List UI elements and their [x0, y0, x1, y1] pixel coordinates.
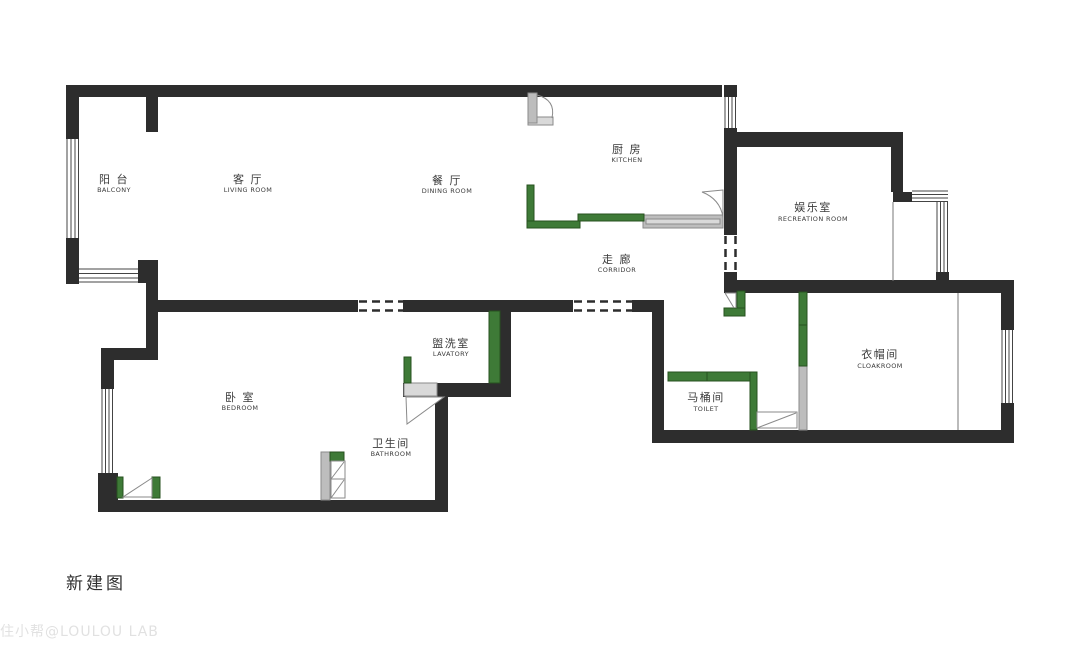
new-wall-entry-cloak-a [799, 292, 807, 325]
balcony-left-window [66, 139, 79, 238]
room-label-bedroom: 卧 室 BEDROOM [222, 390, 259, 412]
wall-balcony-left-upper [66, 85, 79, 139]
room-label-kitchen: 厨 房 KITCHEN [612, 143, 643, 164]
wall-recreation-left-lower [724, 272, 737, 293]
new-wall-bedroom-jamb-right [152, 477, 160, 498]
wall-balcony-left-lower [66, 238, 79, 284]
wall-bathroom-right [435, 388, 448, 512]
wall-bottom-left-block [98, 500, 448, 512]
room-label-toilet: 马桶间 TOILET [687, 390, 725, 413]
wall-recreation-top [724, 132, 903, 147]
bathroom-door-jamb [321, 452, 330, 500]
new-wall-toilet-top-b [707, 372, 753, 381]
wall-corridor-b [403, 300, 573, 312]
wall-bay-corner [893, 192, 912, 202]
wall-balcony-bottom-block [138, 260, 158, 283]
recreation-bay-window-top [912, 190, 948, 202]
room-label-zh: 衣帽间 [861, 347, 899, 361]
room-label-en: CLOAKROOM [857, 362, 903, 370]
kitchen-sliding-door [643, 215, 723, 228]
room-label-en: BEDROOM [222, 404, 259, 412]
room-label-en: CORRIDOR [598, 266, 637, 274]
room-label-en: BATHROOM [371, 450, 412, 458]
opening-bedroom-passage [358, 299, 403, 313]
wall-top [68, 85, 722, 97]
entry-hall-door-swing [725, 293, 736, 308]
kitchen-right-window [724, 97, 737, 128]
room-label-zh: 马桶间 [687, 390, 725, 404]
bedroom-left-window [101, 389, 114, 473]
wall-bedroom-left-upper [101, 348, 114, 389]
room-label-corridor: 走 廊 CORRIDOR [598, 252, 637, 274]
lavatory-door-sill [404, 383, 437, 396]
new-wall-toilet-right [750, 372, 757, 430]
wall-bay-post [936, 272, 949, 287]
floor-plan-page: 阳 台 BALCONY 客 厅 LIVING ROOM 餐 厅 DINING R… [0, 0, 1080, 658]
kitchen-door-swing [702, 190, 723, 217]
new-wall-bathroom-stub [330, 452, 344, 461]
new-wall-toilet-top-a [668, 372, 707, 381]
new-wall-kitchen-high [578, 214, 644, 221]
wall-cloakroom-right-lower [1001, 403, 1014, 443]
room-label-zh: 卧 室 [225, 390, 255, 404]
room-label-recreation-room: 娱乐室 RECREATION ROOM [778, 200, 848, 223]
new-wall-bedroom-jamb-left [117, 477, 123, 498]
watermark: 住小帮@LOULOU LAB [0, 621, 159, 641]
room-label-en: KITCHEN [612, 156, 643, 164]
room-label-zh: 阳 台 [99, 172, 129, 186]
entry-door [528, 93, 553, 125]
opening-corridor-entry [573, 299, 632, 313]
room-label-zh: 客 厅 [233, 172, 263, 186]
room-label-zh: 走 廊 [602, 252, 632, 266]
room-label-en: RECREATION ROOM [778, 215, 848, 223]
room-label-zh: 盥洗室 [432, 336, 470, 350]
room-label-en: DINING ROOM [422, 187, 472, 195]
room-label-balcony: 阳 台 BALCONY [97, 172, 131, 194]
wall-recreation-right [891, 147, 903, 192]
drawing-title: 新建图 [66, 569, 126, 594]
floor-plan-canvas: 阳 台 BALCONY 客 厅 LIVING ROOM 餐 厅 DINING R… [0, 0, 1080, 658]
room-label-zh: 娱乐室 [794, 200, 832, 214]
room-label-dining-room: 餐 厅 DINING ROOM [422, 173, 472, 195]
wall-bottom-right-block [652, 430, 1014, 443]
bathroom-folding-door [331, 461, 345, 498]
room-label-zh: 餐 厅 [432, 173, 462, 187]
toilet-door-swing [757, 412, 797, 428]
opening-recreation-left [723, 235, 738, 272]
wall-balcony-divider-stub [146, 85, 158, 132]
room-label-en: TOILET [692, 405, 718, 413]
bedroom-door-swing [123, 478, 152, 497]
room-label-lavatory: 盥洗室 LAVATORY [432, 336, 470, 358]
room-label-en: BALCONY [97, 186, 131, 194]
new-wall-lavatory-right [489, 311, 500, 383]
room-label-cloakroom: 衣帽间 CLOAKROOM [857, 347, 903, 370]
new-wall-entry-jamb-horizontal [724, 308, 745, 316]
cloakroom-right-window [1001, 330, 1014, 403]
room-label-zh: 厨 房 [612, 143, 642, 156]
wall-recreation-bottom [724, 280, 1014, 293]
recreation-bay-window-right [936, 202, 949, 272]
new-wall-lavatory-left-jamb [404, 357, 411, 383]
room-label-en: LAVATORY [433, 350, 469, 358]
room-label-bathroom: 卫生间 BATHROOM [371, 436, 412, 458]
new-wall-entry-cloak-b [799, 325, 807, 366]
balcony-bottom-window [79, 268, 138, 283]
wall-layer [66, 85, 1014, 512]
new-wall-kitchen-low [527, 221, 580, 228]
room-label-living-room: 客 厅 LIVING ROOM [224, 172, 273, 194]
wall-corridor-a [146, 300, 358, 312]
wall-lavatory-right [499, 310, 511, 385]
cloakroom-door-jamb [799, 366, 807, 430]
room-label-en: LIVING ROOM [224, 186, 273, 194]
wall-toilet-block-left [652, 300, 664, 443]
wall-kitchen-right-corner [724, 85, 737, 97]
room-label-zh: 卫生间 [372, 436, 410, 450]
